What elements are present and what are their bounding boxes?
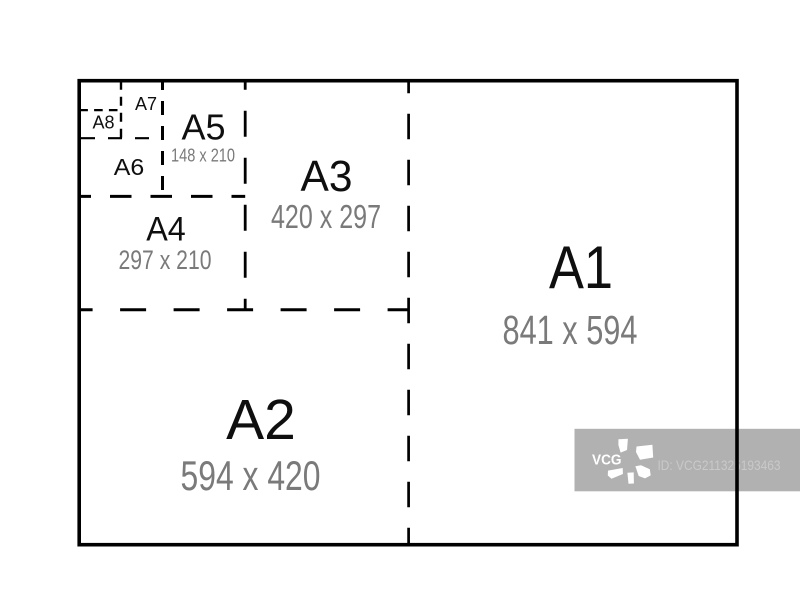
svg-text:A3: A3 (301, 152, 353, 201)
svg-text:A2: A2 (226, 388, 296, 452)
svg-text:841 x 594: 841 x 594 (503, 307, 638, 353)
svg-text:A7: A7 (135, 94, 157, 114)
svg-text:ID: VCG211325193463: ID: VCG211325193463 (658, 458, 781, 473)
svg-text:A6: A6 (114, 154, 145, 180)
svg-text:A5: A5 (181, 107, 225, 148)
svg-text:VCG: VCG (592, 453, 622, 469)
svg-text:594 x 420: 594 x 420 (181, 452, 321, 499)
svg-text:148 x 210: 148 x 210 (171, 145, 235, 166)
svg-text:A1: A1 (549, 234, 613, 301)
svg-text:A4: A4 (146, 211, 186, 249)
svg-text:420 x 297: 420 x 297 (271, 198, 381, 235)
svg-text:A8: A8 (92, 113, 114, 133)
svg-text:297 x 210: 297 x 210 (119, 245, 212, 275)
